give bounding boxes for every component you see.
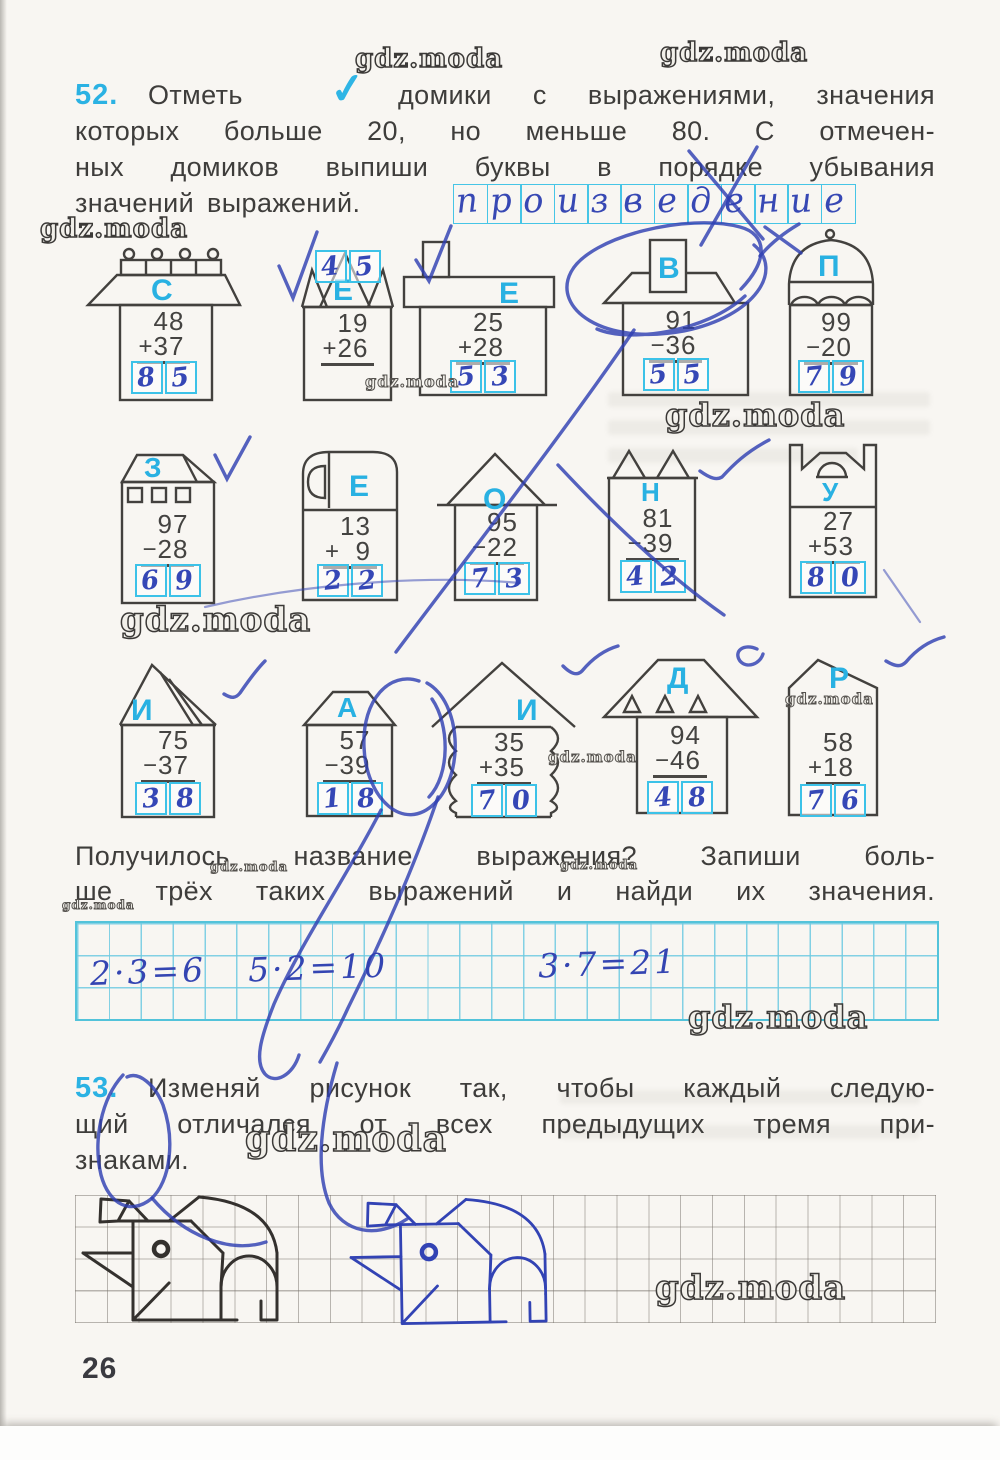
house-letter: Д [667, 664, 688, 694]
printed-dog-figure [83, 1197, 277, 1320]
operator-sign: − [806, 336, 820, 360]
page-bottom-edge [0, 1426, 1000, 1460]
answer-box: 3 [498, 562, 530, 595]
bottom-number: 37 [154, 334, 185, 359]
task52-line2: которых больше 20, но меньше 80. С отмеч… [75, 116, 935, 147]
answer-boxes: 85 [85, 361, 242, 394]
operator-sign: − [143, 754, 157, 778]
answer-digit: 8 [356, 783, 377, 815]
house-expression: −9136 [598, 308, 753, 363]
operator-sign: + [325, 540, 339, 564]
answer-digit: 7 [476, 785, 497, 817]
operator-sign: − [325, 754, 339, 778]
answer-word-boxes: п р о и з в е д е н и е [455, 184, 856, 224]
house-expression: −8139 [605, 506, 700, 561]
house-expression: +139 [301, 514, 399, 569]
handwritten-letter: в [622, 180, 645, 221]
house-v: В −9136 55 [598, 240, 753, 395]
watermark: gdz.moda [210, 860, 288, 875]
answer-box: 8 [681, 781, 713, 814]
letter-box: о [520, 184, 555, 224]
operator-sign: − [143, 538, 157, 562]
house-expression: +2528 [403, 310, 555, 365]
bottom-number: 9 [356, 539, 371, 564]
answer-digit: 5 [682, 359, 703, 391]
answer-boxes: 69 [119, 564, 216, 597]
pen-stroke [884, 570, 920, 622]
watermark: gdz.moda [665, 396, 845, 434]
operator-sign: + [479, 756, 493, 780]
watermark: gdz.moda [655, 1268, 846, 1308]
house-i2: И +3535 70 [430, 660, 578, 817]
bottom-number: 20 [821, 335, 852, 360]
letter-box: з [587, 184, 622, 224]
house-z: З −9728 69 [119, 452, 216, 603]
answer-box: 2 [351, 564, 383, 597]
answer-digit: 2 [659, 561, 680, 593]
answer-digit: 8 [805, 562, 826, 594]
answer-box: 2 [317, 564, 349, 597]
answer-box: 8 [351, 782, 383, 815]
operator-sign: + [139, 335, 153, 359]
answer-digit: 6 [140, 565, 161, 597]
answer-digit: 5 [354, 251, 375, 283]
answer-box: 8 [169, 782, 201, 815]
page-left-edge [0, 0, 7, 1428]
answer-digit: 9 [174, 565, 195, 597]
answer-digit: 7 [805, 785, 826, 817]
answer-box: 4 [647, 781, 679, 814]
task53-line2: щий отличался от всех предыдущих тремя п… [75, 1109, 935, 1140]
bottom-number: 37 [158, 753, 189, 778]
letter-box: н [754, 184, 789, 224]
task52-line1-word: Отметь [148, 80, 243, 111]
bottom-number: 39 [340, 753, 371, 778]
house-e3: Е +139 22 [301, 448, 399, 600]
handwritten-letter: р [488, 180, 513, 221]
handwritten-letter: д [689, 180, 713, 221]
watermark: gdz.moda [245, 1118, 447, 1160]
answer-box: 7 [800, 784, 832, 817]
answer-digit: 6 [839, 785, 860, 817]
answer-boxes: 80 [788, 561, 878, 594]
answer-boxes: 38 [118, 782, 218, 815]
handwritten-letter: н [756, 180, 781, 221]
workbook-page: 52. Отметь ✓ домики с выражениями, значе… [0, 0, 1000, 1460]
answer-box: 5 [677, 358, 709, 391]
pen-checkmark [224, 661, 265, 697]
watermark: gdz.moda [365, 372, 459, 391]
handwritten-letter: п [455, 180, 480, 221]
handdrawn-dog-figure [350, 1198, 546, 1324]
task52-followup-line1: Получилось название выражения? Запиши бо… [75, 841, 935, 872]
watermark: gdz.moda [785, 690, 874, 708]
house-d: Д −9446 48 [600, 655, 760, 813]
answer-digit: 4 [320, 251, 341, 283]
answer-digit: 7 [469, 563, 490, 595]
handwritten-letter: и [555, 180, 580, 221]
answer-box: 3 [484, 360, 516, 393]
answer-digit: 5 [170, 362, 191, 394]
house-u: У +2753 80 [788, 443, 878, 597]
house-expression: +4837 [85, 309, 242, 364]
house-n: Н −8139 42 [605, 448, 700, 600]
watermark: gdz.moda [688, 998, 868, 1036]
house-letter: З [144, 454, 162, 482]
operator-sign: − [651, 334, 665, 358]
house-letter: И [516, 696, 538, 726]
letter-box: и [787, 184, 822, 224]
answer-digit: 7 [803, 361, 824, 393]
pen-checkmark [215, 437, 250, 479]
answer-boxes: 73 [437, 562, 557, 595]
operator-sign: + [458, 336, 472, 360]
answer-box: 6 [834, 784, 866, 817]
letter-box: п [453, 184, 488, 224]
answer-digit: 2 [322, 565, 343, 597]
answer-boxes: 48 [600, 781, 760, 814]
bottom-number: 26 [338, 336, 369, 361]
answer-box: 7 [464, 562, 496, 595]
answer-box: 8 [800, 561, 832, 594]
watermark: gdz.moda [660, 38, 808, 68]
bottom-number: 35 [494, 755, 525, 780]
watermark: gdz.moda [548, 748, 637, 766]
answer-digit: 1 [322, 783, 343, 815]
watermark: gdz.moda [560, 858, 638, 873]
house-letter: А [337, 694, 357, 722]
house-expression: −9920 [785, 310, 877, 365]
operator-sign: + [808, 535, 822, 559]
letter-box: р [487, 184, 522, 224]
house-r: Р +5818 76 [787, 657, 879, 817]
house-letter: И [131, 696, 153, 726]
task53-line3: знаками. [75, 1145, 189, 1176]
task52-number: 52. [75, 79, 118, 112]
house-p: П −9920 79 [785, 228, 877, 395]
house-letter: Н [641, 479, 660, 505]
answer-digit: 8 [136, 362, 157, 394]
answer-boxes: 79 [785, 360, 877, 393]
answer-box: 0 [505, 784, 537, 817]
operator-sign: − [655, 749, 669, 773]
answer-boxes: 18 [302, 782, 397, 815]
house-expression: +5818 [787, 730, 879, 785]
answer-digit: 3 [503, 563, 524, 595]
house-expression: −5739 [302, 728, 397, 783]
answer-box: 4 [620, 560, 652, 593]
handwritten-expression: 3·7=21 [537, 942, 678, 986]
watermark: gdz.moda [40, 214, 188, 244]
handwritten-letter: е [722, 180, 745, 221]
answer-boxes: 55 [598, 358, 753, 391]
bottom-number: 22 [487, 535, 518, 560]
letter-box: е [654, 184, 689, 224]
letter-box: д [687, 184, 722, 224]
answer-box: 3 [135, 782, 167, 815]
task53-number: 53. [75, 1072, 118, 1105]
house-i1: И −7537 38 [118, 660, 218, 817]
answer-box: 9 [169, 564, 201, 597]
house-expression: −7537 [118, 728, 218, 783]
house-a: А −5739 18 [302, 690, 397, 816]
house-letter: В [658, 254, 680, 284]
answer-box: 9 [832, 360, 864, 393]
house-letter: Е [349, 472, 369, 502]
answer-digit: 2 [356, 565, 377, 597]
operator-sign: + [323, 337, 337, 361]
operator-sign: − [628, 532, 642, 556]
answer-box: 5 [643, 358, 675, 391]
answer-box: 5 [165, 361, 197, 394]
bottom-number: 46 [670, 748, 701, 773]
answer-box: 0 [834, 561, 866, 594]
task52-followup-line2: ше трёх таких выражений и найди их значе… [75, 876, 935, 907]
answer-boxes: 22 [301, 564, 399, 597]
watermark: gdz.moda [120, 600, 311, 640]
letter-box: е [821, 184, 856, 224]
house-o: О −9522 73 [437, 450, 557, 600]
answer-digit: 5 [648, 359, 669, 391]
answer-digit: 4 [652, 782, 673, 814]
house-expression: −9522 [437, 510, 557, 565]
letter-box: в [620, 184, 655, 224]
house-s: С +4837 85 [85, 245, 242, 400]
task53-line1: Изменяй рисунок так, чтобы каждый следую… [148, 1073, 935, 1104]
bottom-number: 28 [158, 537, 189, 562]
watermark: gdz.moda [62, 898, 135, 912]
house-letter: Е [499, 279, 519, 309]
answer-digit: 9 [837, 361, 858, 393]
house-letter: П [818, 252, 840, 282]
house-expression: −9728 [119, 512, 216, 567]
house-expression: +2753 [788, 509, 878, 564]
letter-box: е [721, 184, 756, 224]
handwritten-letter: о [522, 180, 545, 221]
answer-boxes: 45 [300, 250, 395, 283]
house-expression: +1926 [300, 311, 395, 366]
answer-box: 1 [317, 782, 349, 815]
answer-digit: 8 [174, 783, 195, 815]
bottom-number: 18 [823, 755, 854, 780]
page-number: 26 [82, 1352, 117, 1386]
handwritten-expression: 2·3=6 [89, 950, 206, 993]
answer-digit: 0 [510, 785, 531, 817]
watermark: gdz.moda [355, 44, 503, 74]
operator-sign: + [808, 756, 822, 780]
bottom-number: 28 [473, 335, 504, 360]
answer-box: 2 [654, 560, 686, 593]
answer-box: 5 [349, 250, 381, 283]
letter-box: и [554, 184, 589, 224]
answer-boxes: 70 [430, 784, 578, 817]
answer-box: 6 [135, 564, 167, 597]
answer-digit: 3 [140, 783, 161, 815]
bottom-number: 36 [666, 333, 697, 358]
handwritten-letter: и [789, 180, 814, 221]
handwritten-expression: 5·2=10 [247, 946, 388, 990]
bottom-number: 39 [643, 531, 674, 556]
answer-box: 8 [131, 361, 163, 394]
task52-line3: ных домиков выпиши буквы в порядке убыва… [75, 152, 935, 183]
answer-box: 7 [798, 360, 830, 393]
operator-sign: − [472, 536, 486, 560]
answer-boxes: 76 [787, 784, 879, 817]
handwritten-letter: з [589, 180, 610, 221]
answer-digit: 3 [489, 361, 510, 393]
answer-digit: 0 [839, 562, 860, 594]
house-letter: С [151, 276, 173, 306]
pen-checkmark [886, 637, 944, 666]
house-letter: У [822, 479, 838, 505]
answer-boxes: 42 [605, 560, 700, 593]
answer-digit: 8 [686, 782, 707, 814]
bottom-number: 53 [823, 534, 854, 559]
answer-box: 7 [471, 784, 503, 817]
answer-box: 4 [315, 250, 347, 283]
task52-line1: домики с выражениями, значения [398, 80, 935, 111]
answer-digit: 4 [625, 561, 646, 593]
handwritten-letter: е [655, 180, 678, 221]
handwritten-letter: е [823, 180, 846, 221]
